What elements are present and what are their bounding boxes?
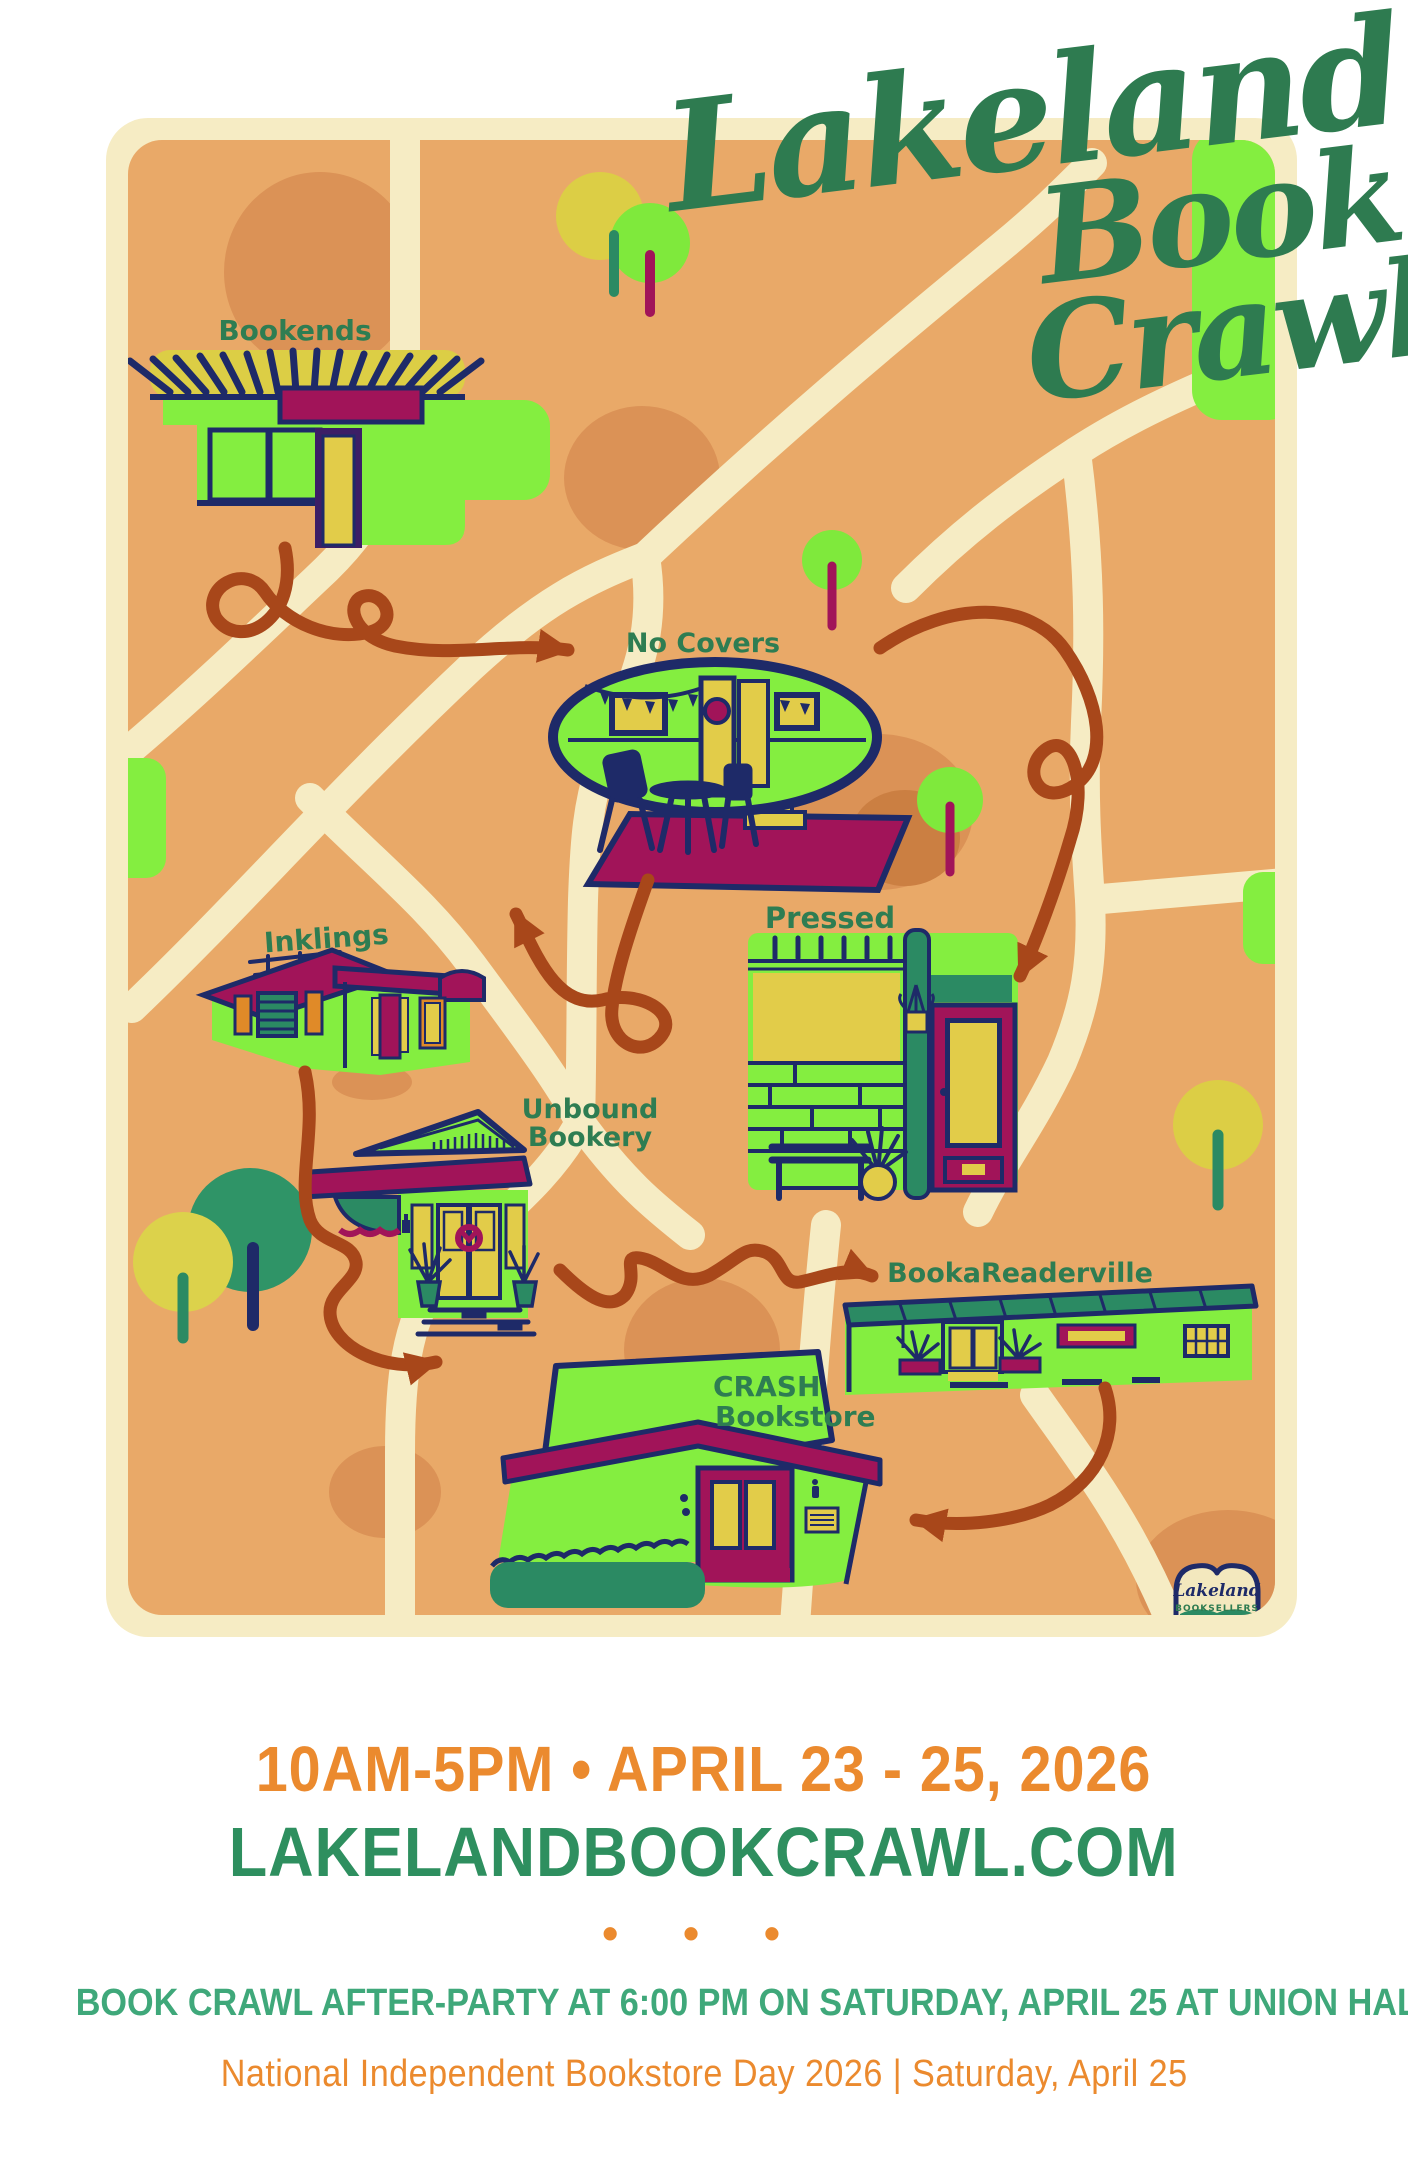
national-day-info-text: National Independent Bookstore Day 2026 … — [221, 2053, 1188, 2096]
national-day-info: National Independent Bookstore Day 2026 … — [0, 2053, 1408, 2096]
store-label-unbound-1: Unbound — [522, 1094, 659, 1125]
store-bookareaderville — [845, 1286, 1256, 1395]
store-label-unbound-2: Bookery — [528, 1122, 653, 1153]
store-pressed — [748, 930, 1018, 1199]
afterparty-info: BOOK CRAWL AFTER-PARTY AT 6:00 PM ON SAT… — [0, 1982, 1408, 2025]
logo-name: Lakeland — [1172, 1581, 1260, 1601]
logo-subtitle: BOOKSELLERS — [1175, 1604, 1259, 1614]
store-label-crash-2: Bookstore — [715, 1400, 876, 1433]
event-hours-dates: 10AM-5PM • APRIL 23 - 25, 2026 — [0, 1732, 1408, 1806]
door-lamp — [812, 1479, 819, 1498]
event-website-text: LAKELANDBOOKCRAWL.COM — [229, 1812, 1179, 1892]
poster-footer: 10AM-5PM • APRIL 23 - 25, 2026 LAKELANDB… — [0, 1732, 1408, 2096]
poster-title: Lakeland Book Crawl — [616, 4, 1408, 461]
store-label-no-covers: No Covers — [626, 628, 780, 659]
event-hours-dates-text: 10AM-5PM • APRIL 23 - 25, 2026 — [256, 1732, 1152, 1806]
store-label-pressed: Pressed — [765, 901, 895, 935]
store-label-bookareaderville: BookaReaderville — [887, 1258, 1153, 1289]
afterparty-info-text: BOOK CRAWL AFTER-PARTY AT 6:00 PM ON SAT… — [76, 1982, 1408, 2025]
store-label-crash-1: CRASH — [713, 1370, 820, 1403]
separator-dots: • • • — [0, 1906, 1408, 1960]
store-label-bookends: Bookends — [218, 314, 371, 347]
book-crawl-poster: Bookends No Covers Inklings Pressed Unbo… — [0, 0, 1408, 2176]
event-website: LAKELANDBOOKCRAWL.COM — [0, 1812, 1408, 1892]
store-no-covers — [553, 662, 908, 890]
